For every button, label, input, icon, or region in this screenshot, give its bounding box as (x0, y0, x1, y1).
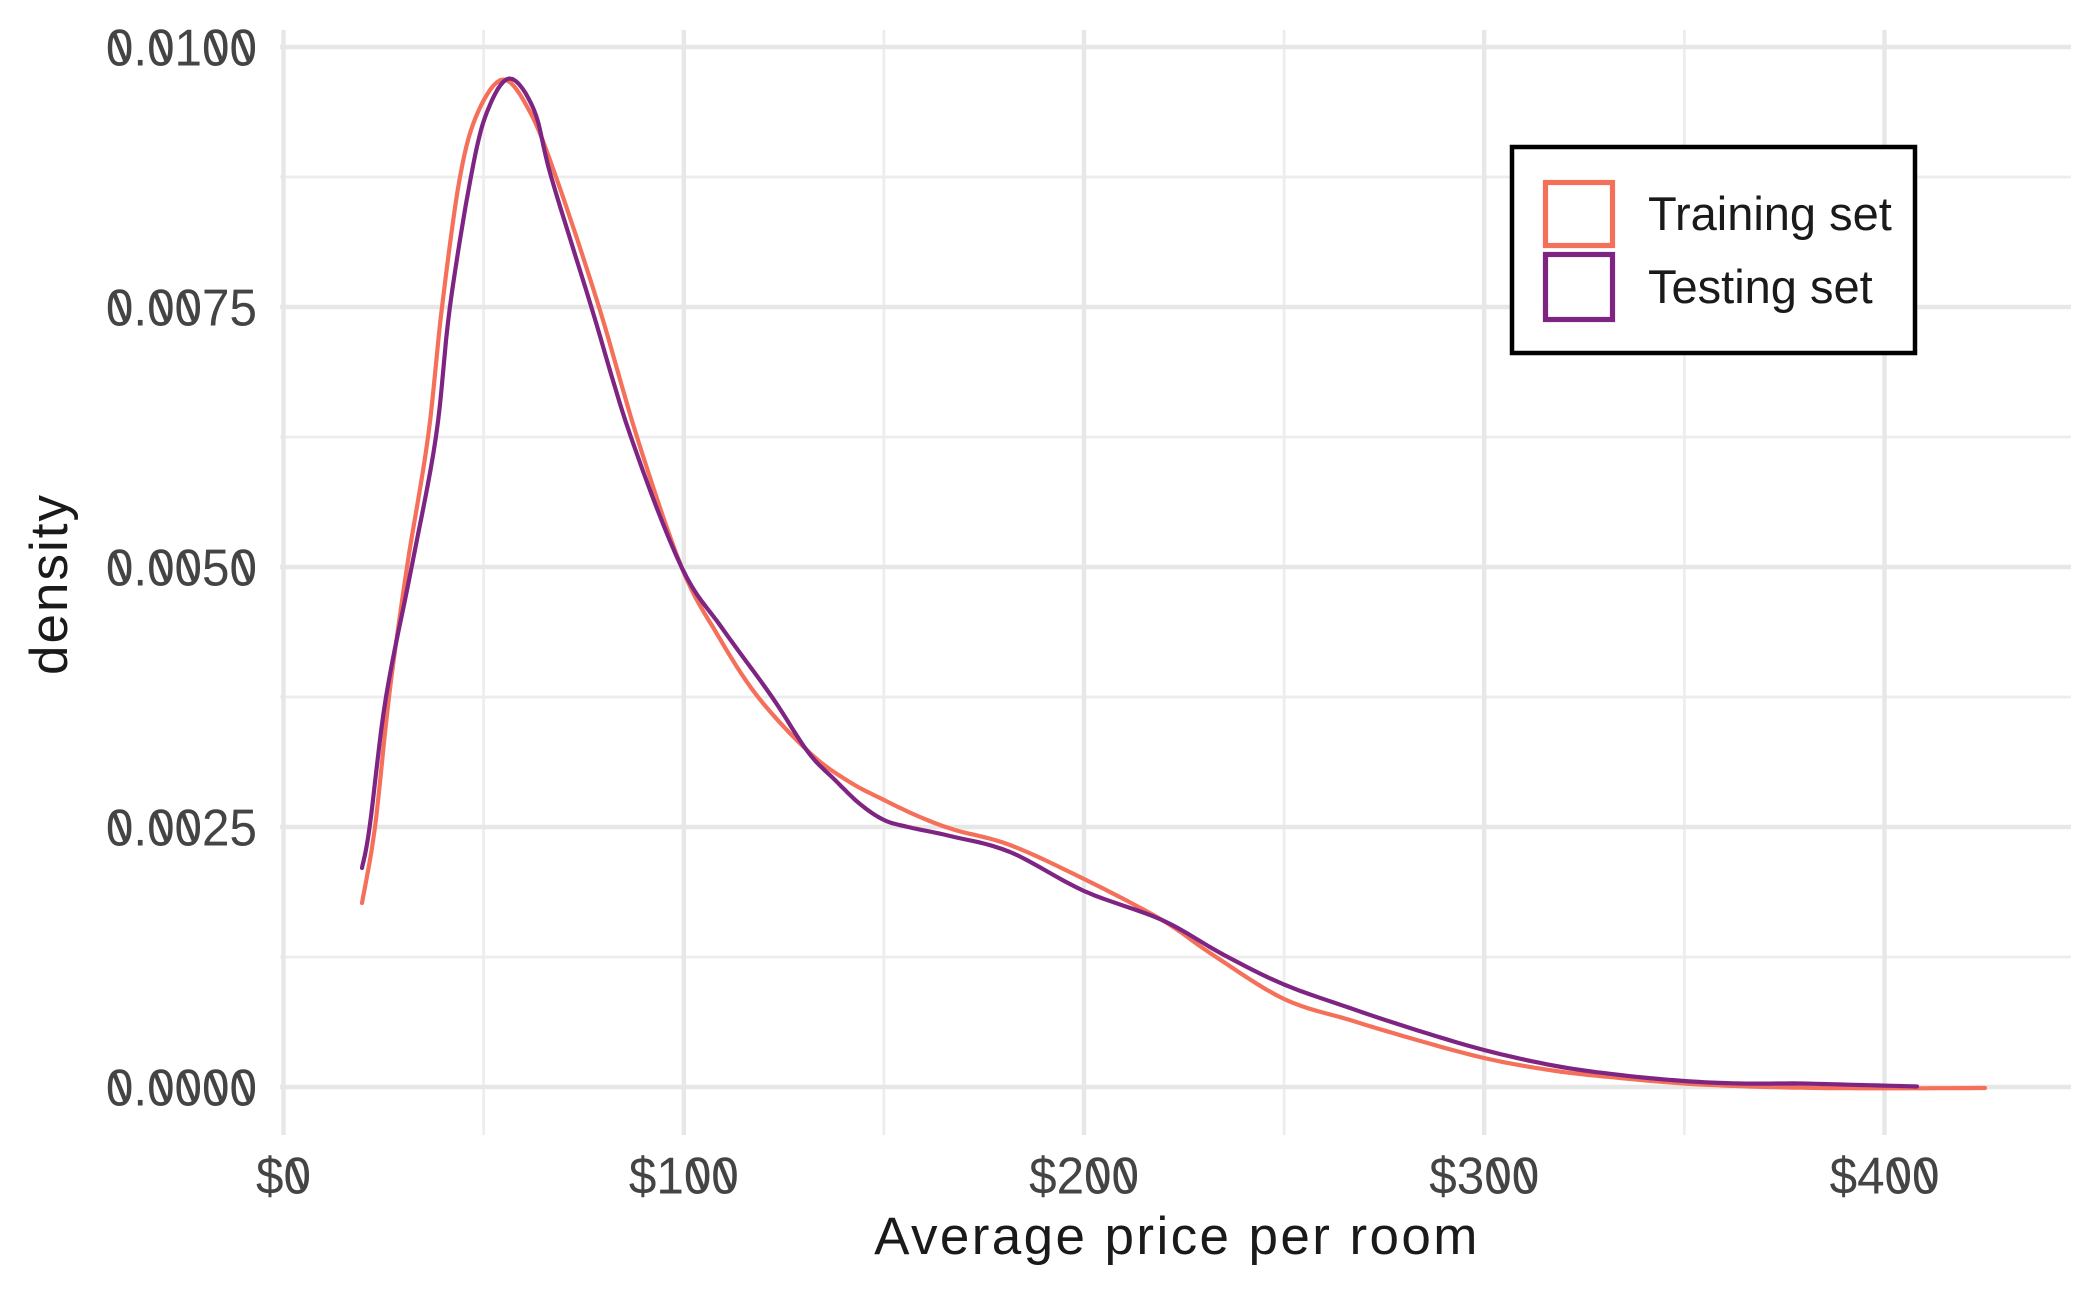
svg-text:0.0075: 0.0075 (106, 278, 257, 336)
svg-text:Testing set: Testing set (1648, 260, 1873, 313)
svg-text:$0: $0 (256, 1146, 311, 1204)
svg-text:0.0050: 0.0050 (106, 538, 257, 596)
svg-text:0.0000: 0.0000 (106, 1058, 257, 1116)
svg-text:Average price per room: Average price per room (874, 1207, 1480, 1266)
svg-text:$200: $200 (1029, 1146, 1139, 1204)
svg-text:density: density (20, 493, 79, 675)
svg-text:$100: $100 (629, 1146, 739, 1204)
svg-text:$300: $300 (1429, 1146, 1539, 1204)
svg-text:0.0100: 0.0100 (106, 18, 257, 76)
svg-text:0.0025: 0.0025 (106, 798, 257, 856)
svg-text:$400: $400 (1830, 1146, 1940, 1204)
svg-text:Training set: Training set (1648, 187, 1892, 240)
